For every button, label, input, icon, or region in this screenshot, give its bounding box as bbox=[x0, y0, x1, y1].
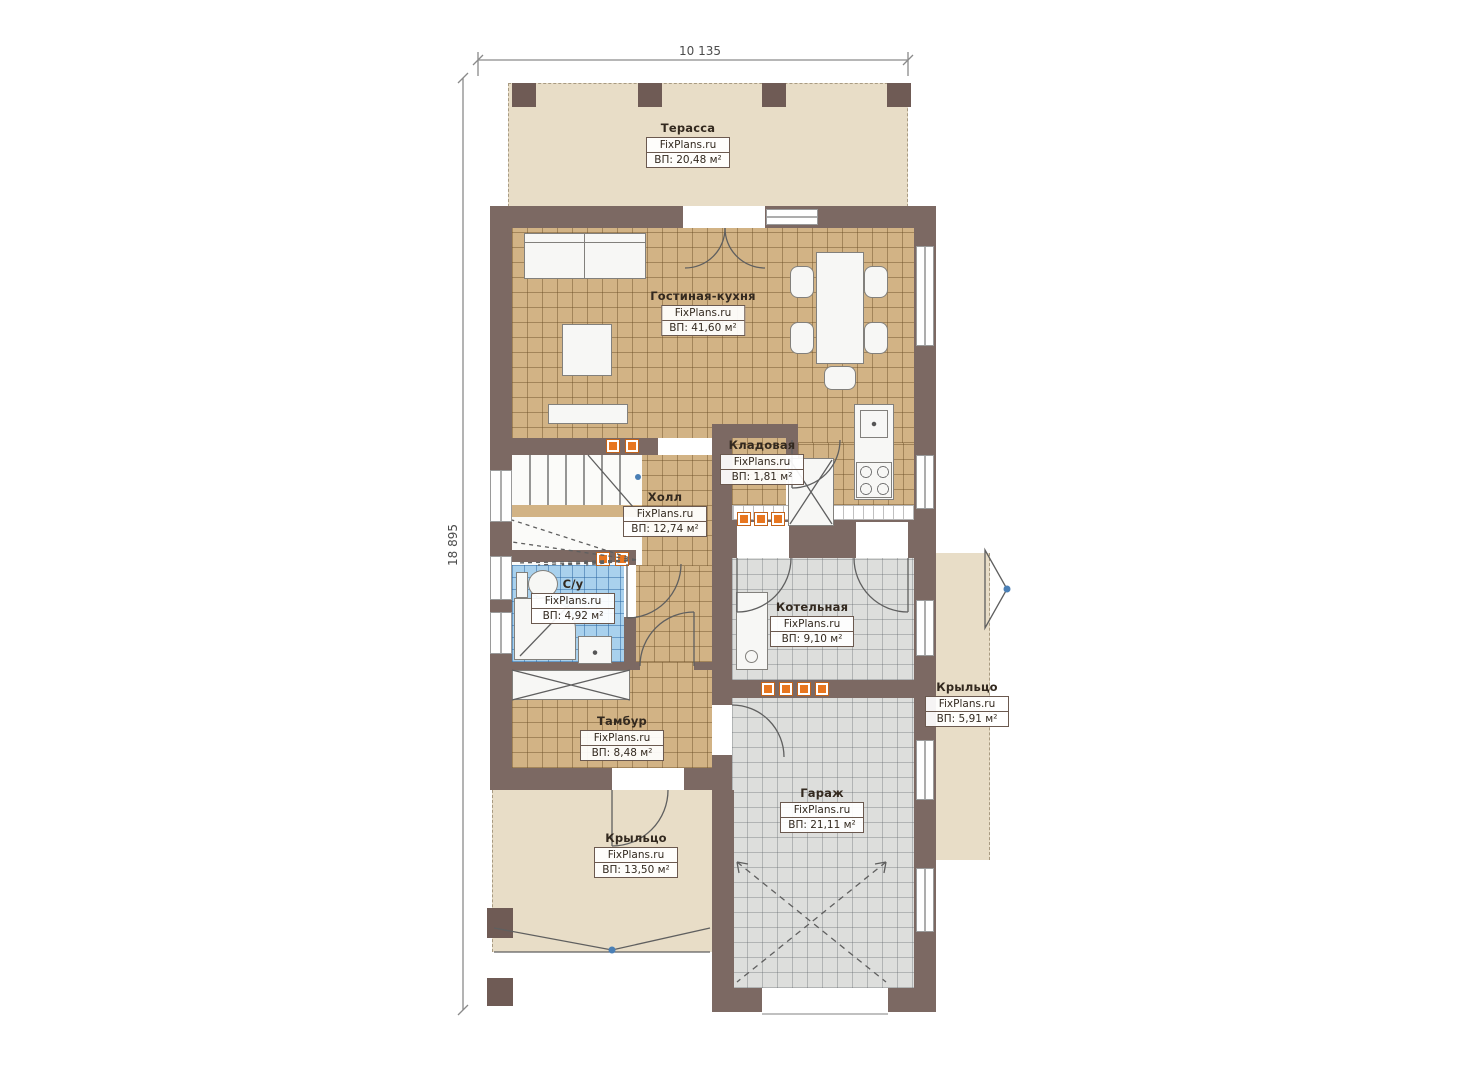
room-area: ВП: 21,11 м² bbox=[781, 817, 863, 832]
garage-gate-swing bbox=[737, 862, 886, 982]
watermark: FixPlans.ru bbox=[647, 138, 729, 152]
room-area: ВП: 12,74 м² bbox=[624, 521, 706, 536]
watermark: FixPlans.ru bbox=[595, 848, 677, 862]
room-name: Гараж bbox=[780, 786, 864, 800]
room-label-boiler: Котельная FixPlans.ru ВП: 9,10 м² bbox=[770, 600, 854, 647]
room-area: ВП: 13,50 м² bbox=[595, 862, 677, 877]
dimension-width: 10 135 bbox=[679, 44, 721, 58]
room-info-box: FixPlans.ru ВП: 13,50 м² bbox=[594, 847, 678, 878]
room-area: ВП: 5,91 м² bbox=[926, 711, 1008, 726]
room-info-box: FixPlans.ru ВП: 21,11 м² bbox=[780, 802, 864, 833]
room-label-garage: Гараж FixPlans.ru ВП: 21,11 м² bbox=[780, 786, 864, 833]
entrance-marker-right bbox=[985, 550, 1011, 628]
wardrobe-cross bbox=[512, 670, 630, 700]
room-info-box: FixPlans.ru ВП: 1,81 м² bbox=[720, 454, 804, 485]
room-info-box: FixPlans.ru ВП: 8,48 м² bbox=[580, 730, 664, 761]
room-name: Гостиная-кухня bbox=[650, 289, 755, 303]
room-name: Холл bbox=[623, 490, 707, 504]
room-area: ВП: 1,81 м² bbox=[721, 469, 803, 484]
watermark: FixPlans.ru bbox=[532, 594, 614, 608]
watermark: FixPlans.ru bbox=[721, 455, 803, 469]
garage-gate-arrows bbox=[737, 862, 888, 1014]
room-name: Тамбур bbox=[580, 714, 664, 728]
room-area: ВП: 20,48 м² bbox=[647, 152, 729, 167]
room-name: Кладовая bbox=[720, 438, 804, 452]
room-name: С/у bbox=[531, 577, 615, 591]
room-area: ВП: 8,48 м² bbox=[581, 745, 663, 760]
dimension-height: 18 895 bbox=[446, 524, 460, 566]
room-info-box: FixPlans.ru ВП: 5,91 м² bbox=[925, 696, 1009, 727]
room-area: ВП: 9,10 м² bbox=[771, 631, 853, 646]
room-label-porch-front: Крыльцо FixPlans.ru ВП: 13,50 м² bbox=[594, 831, 678, 878]
room-name: Терасса bbox=[646, 121, 730, 135]
room-info-box: FixPlans.ru ВП: 9,10 м² bbox=[770, 616, 854, 647]
room-info-box: FixPlans.ru ВП: 12,74 м² bbox=[623, 506, 707, 537]
watermark: FixPlans.ru bbox=[926, 697, 1008, 711]
room-info-box: FixPlans.ru ВП: 4,92 м² bbox=[531, 593, 615, 624]
room-info-box: FixPlans.ru ВП: 20,48 м² bbox=[646, 137, 730, 168]
watermark: FixPlans.ru bbox=[771, 617, 853, 631]
room-area: ВП: 4,92 м² bbox=[532, 608, 614, 623]
room-label-pantry: Кладовая FixPlans.ru ВП: 1,81 м² bbox=[720, 438, 804, 485]
room-label-vestibule: Тамбур FixPlans.ru ВП: 8,48 м² bbox=[580, 714, 664, 761]
room-label-hall: Холл FixPlans.ru ВП: 12,74 м² bbox=[623, 490, 707, 537]
plan-linework bbox=[0, 0, 1474, 1080]
porch-steps-marker bbox=[494, 928, 710, 954]
room-name: Крыльцо bbox=[925, 680, 1009, 694]
room-label-bathroom: С/у FixPlans.ru ВП: 4,92 м² bbox=[531, 577, 615, 624]
room-area: ВП: 41,60 м² bbox=[662, 320, 744, 335]
watermark: FixPlans.ru bbox=[662, 306, 744, 320]
stair-treads bbox=[512, 455, 641, 565]
floor-plan-canvas: 10 135 18 895 Терасса FixPlans.ru ВП: 20… bbox=[0, 0, 1474, 1080]
watermark: FixPlans.ru bbox=[581, 731, 663, 745]
room-label-living-kitchen: Гостиная-кухня FixPlans.ru ВП: 41,60 м² bbox=[650, 289, 755, 336]
watermark: FixPlans.ru bbox=[781, 803, 863, 817]
room-info-box: FixPlans.ru ВП: 41,60 м² bbox=[661, 305, 745, 336]
room-label-porch-right: Крыльцо FixPlans.ru ВП: 5,91 м² bbox=[925, 680, 1009, 727]
room-label-terrace: Терасса FixPlans.ru ВП: 20,48 м² bbox=[646, 121, 730, 168]
watermark: FixPlans.ru bbox=[624, 507, 706, 521]
room-name: Крыльцо bbox=[594, 831, 678, 845]
room-name: Котельная bbox=[770, 600, 854, 614]
